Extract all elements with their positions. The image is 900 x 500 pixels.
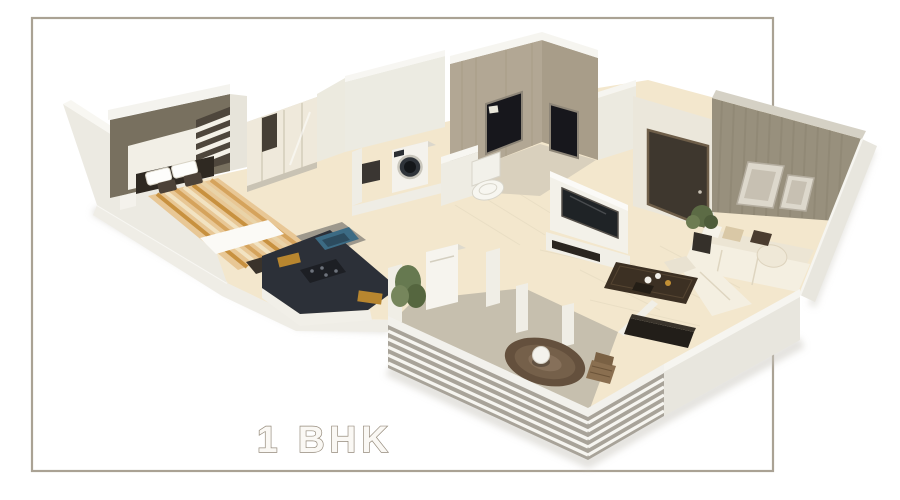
cafe-table	[533, 347, 550, 364]
niche-wall	[598, 86, 636, 160]
floor-plan-page: 1 BHK	[0, 0, 900, 500]
door-handle	[698, 190, 702, 194]
floor-plan-illustration	[63, 32, 877, 462]
unit-type-label: 1 BHK	[257, 419, 393, 460]
shower-window	[550, 104, 578, 158]
balcony-door-frame	[486, 248, 500, 307]
wardrobe-niche	[262, 113, 277, 152]
balcony-door-frame	[516, 283, 528, 333]
balcony-door-frame	[562, 303, 574, 347]
utility-cabinet	[362, 160, 380, 184]
floor-plan-image: 1 BHK	[0, 0, 900, 500]
